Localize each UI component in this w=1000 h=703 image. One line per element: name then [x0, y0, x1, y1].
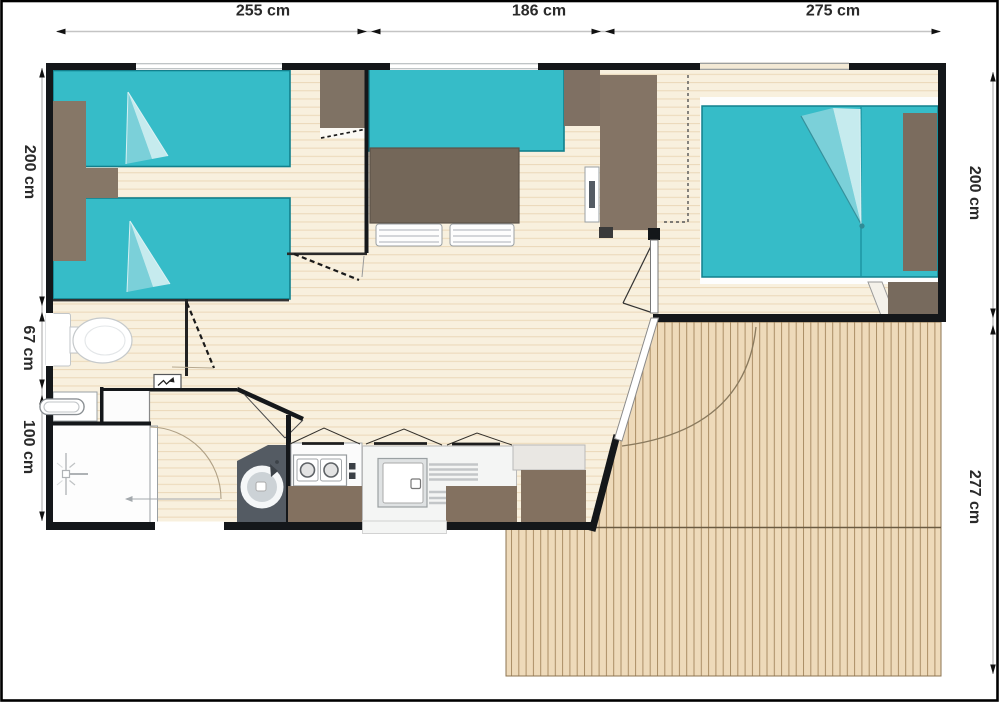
svg-text:277 cm: 277 cm: [966, 470, 983, 524]
svg-text:200 cm: 200 cm: [966, 166, 983, 220]
svg-text:186 cm: 186 cm: [512, 3, 566, 20]
svg-text:200 cm: 200 cm: [21, 145, 38, 199]
svg-text:275 cm: 275 cm: [806, 3, 860, 20]
svg-text:255 cm: 255 cm: [236, 3, 290, 20]
svg-text:67 cm: 67 cm: [20, 325, 37, 370]
svg-text:100 cm: 100 cm: [20, 420, 37, 474]
